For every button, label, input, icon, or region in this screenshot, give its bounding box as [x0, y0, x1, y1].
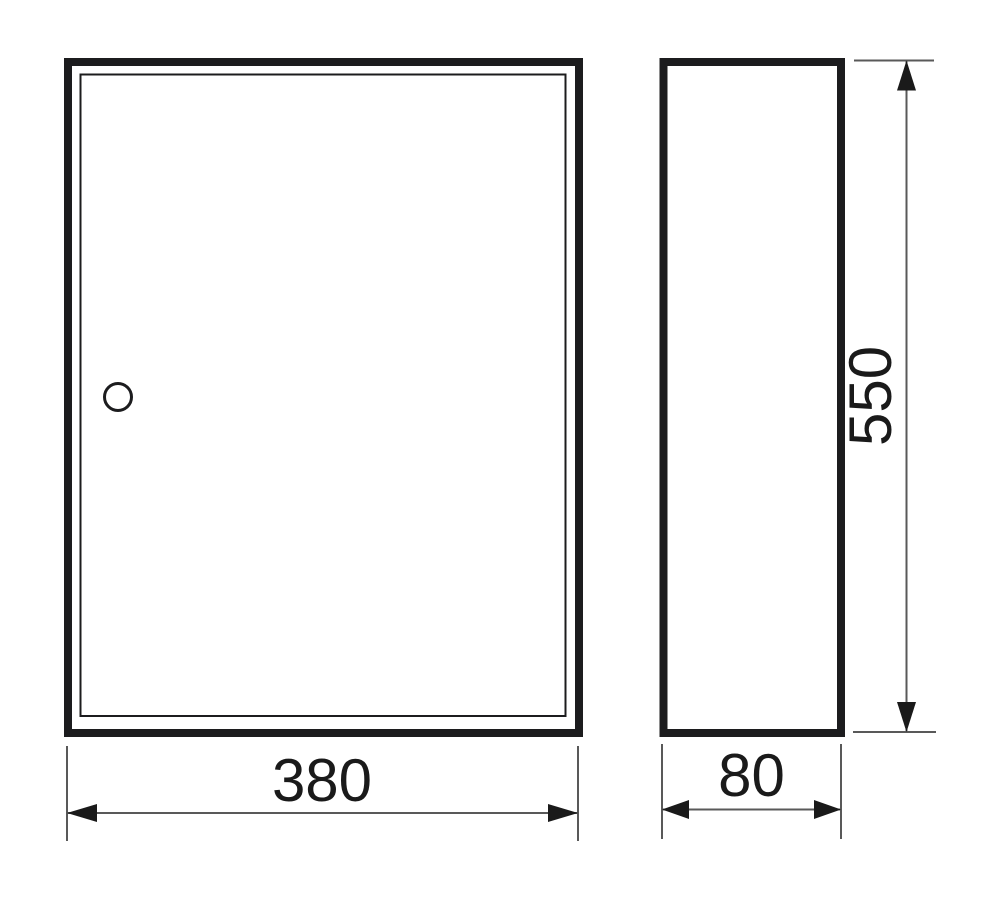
arrow-right-icon: [814, 800, 841, 819]
arrow-down-icon: [897, 702, 916, 732]
width-dimension-label: 380: [272, 747, 372, 814]
side-view: [664, 62, 842, 733]
technical-drawing-canvas: 380 80 550: [0, 0, 1000, 899]
arrow-left-icon: [67, 804, 97, 822]
height-dimension: 550: [837, 61, 936, 733]
height-dimension-label: 550: [837, 346, 904, 446]
arrow-left-icon: [662, 800, 689, 819]
front-door-panel-outline: [81, 75, 566, 717]
depth-dimension: 80: [662, 742, 841, 839]
front-view-outline: [68, 62, 579, 733]
width-dimension: 380: [67, 746, 578, 841]
cabinet-dimension-drawing: 380 80 550: [0, 0, 1000, 899]
lock-cylinder-icon: [105, 384, 132, 411]
arrow-right-icon: [548, 804, 578, 822]
arrow-up-icon: [897, 61, 916, 91]
side-view-outline: [664, 62, 842, 733]
depth-dimension-label: 80: [718, 742, 785, 809]
front-view: [68, 62, 579, 733]
